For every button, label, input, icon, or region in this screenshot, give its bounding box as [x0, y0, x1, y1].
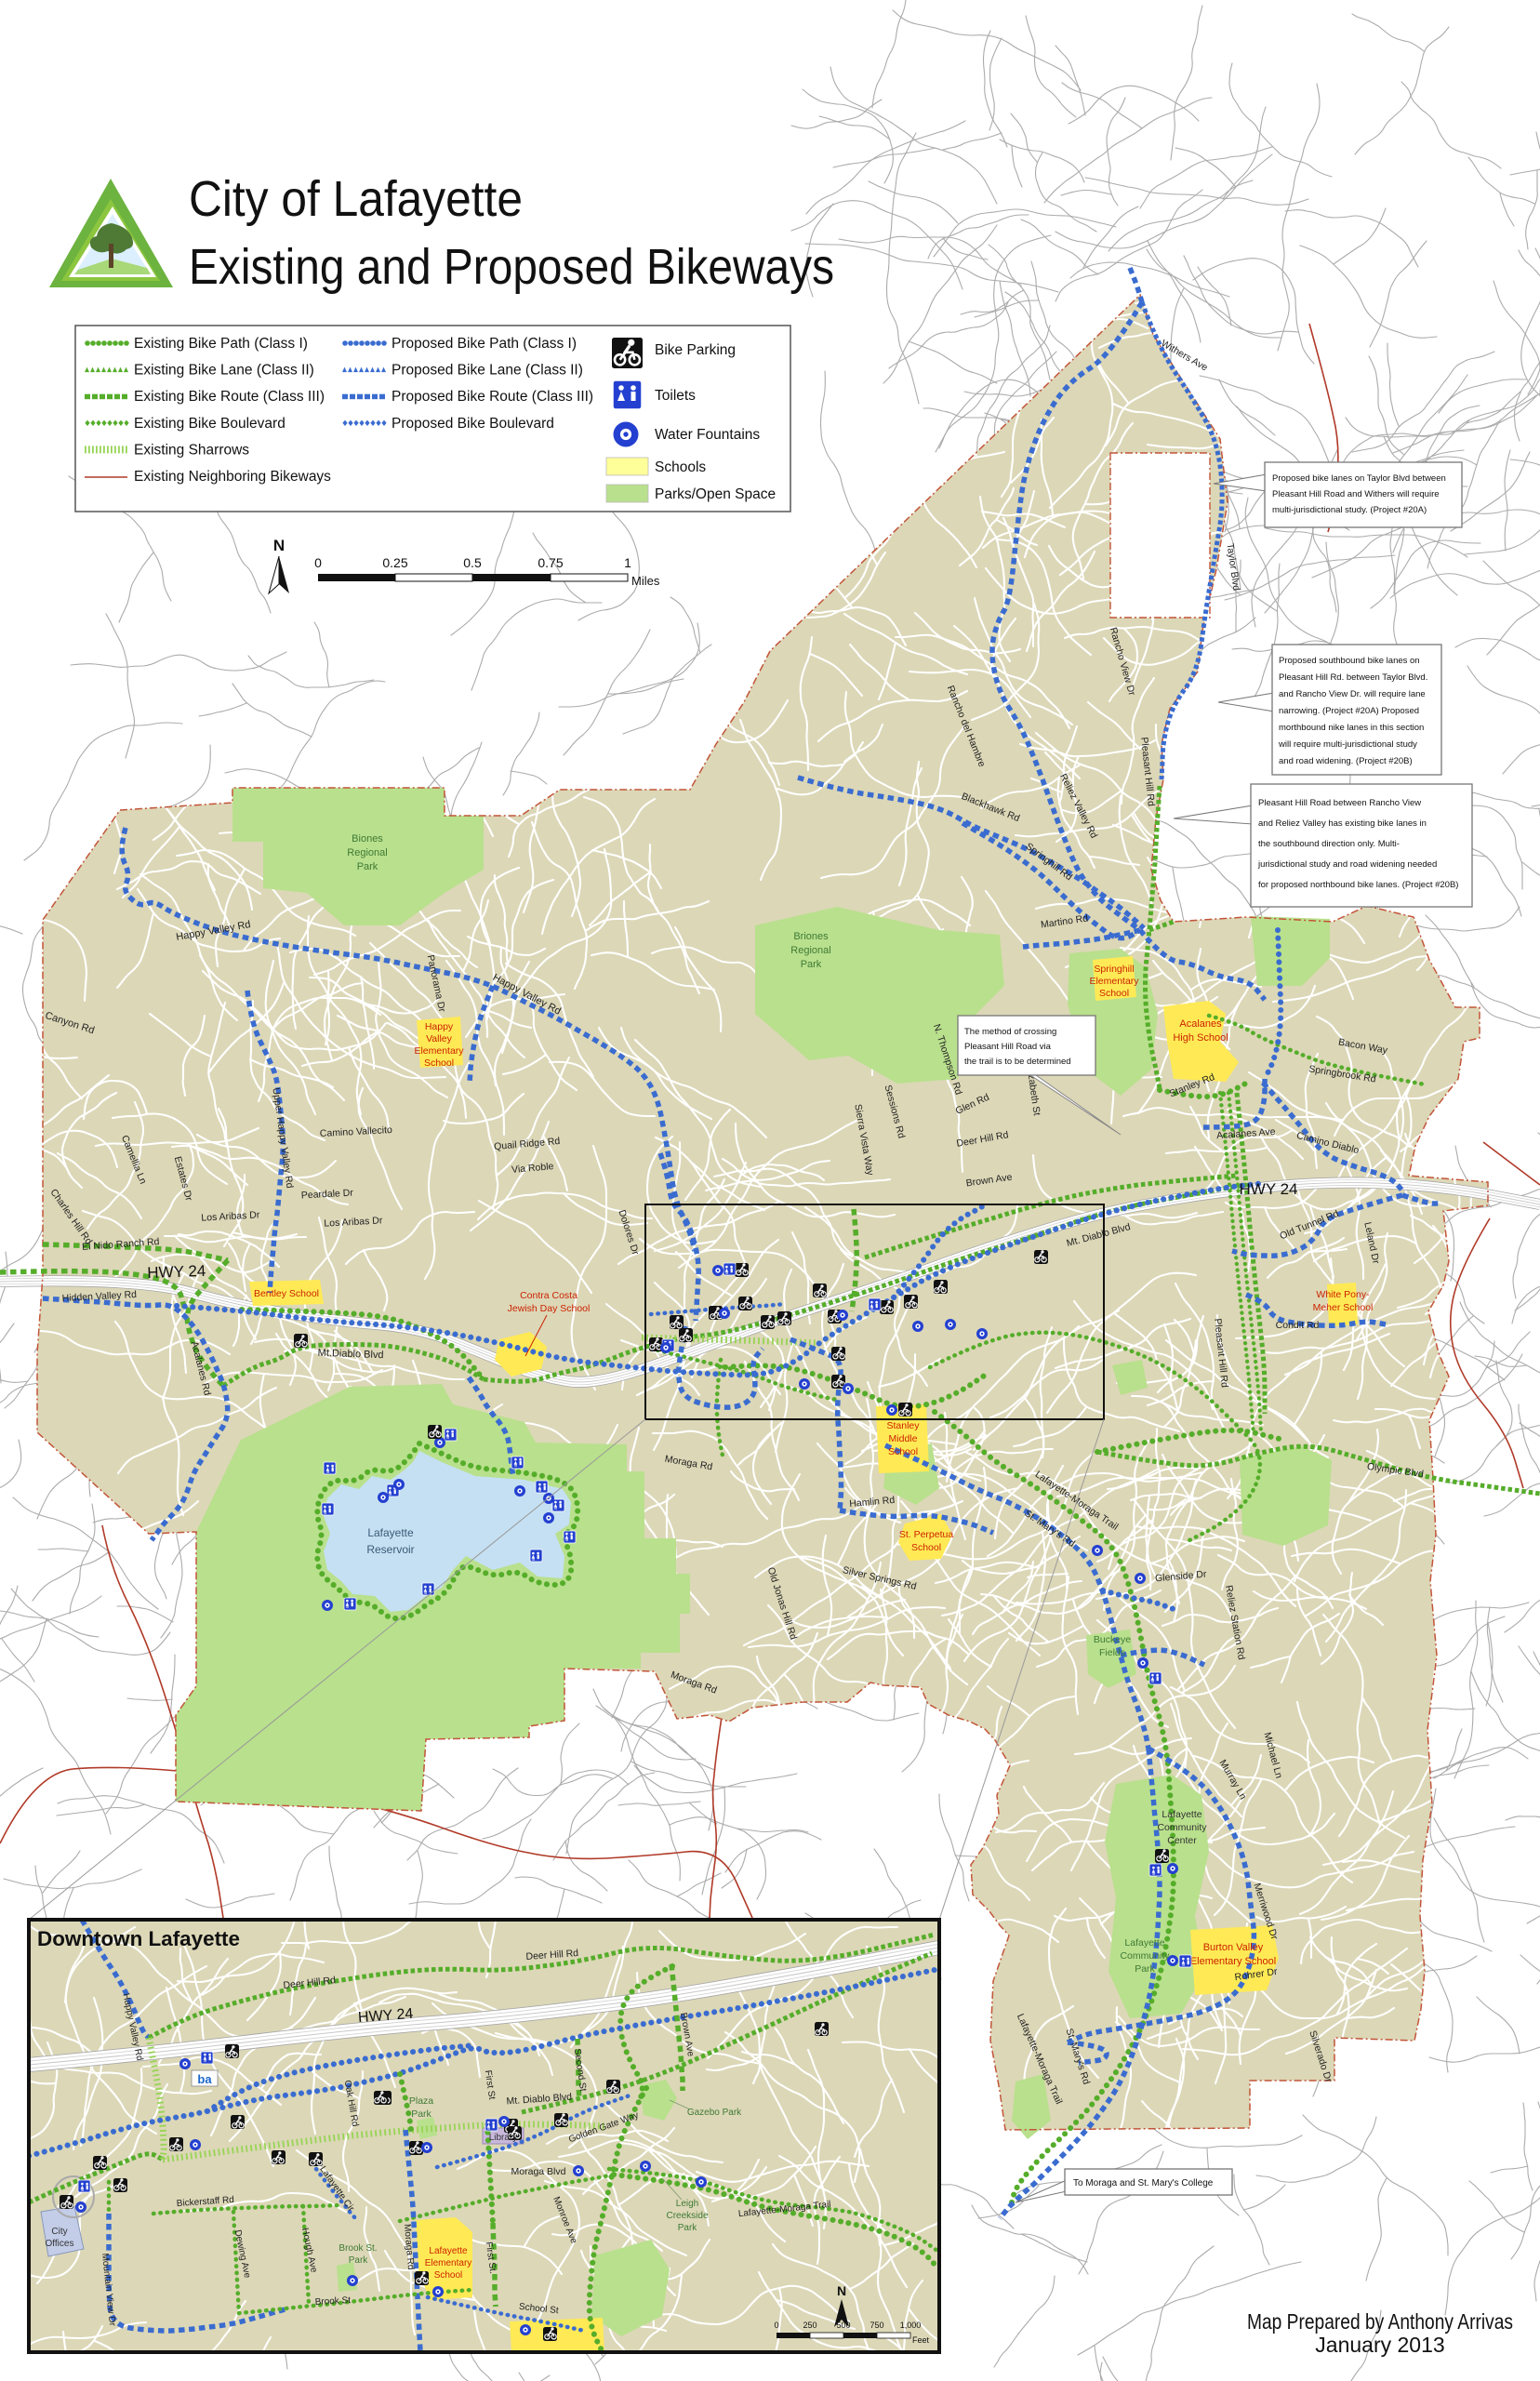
- svg-text:Happy: Happy: [425, 1021, 454, 1032]
- svg-text:Parks/Open Space: Parks/Open Space: [655, 486, 776, 502]
- svg-text:Center: Center: [1167, 1835, 1197, 1846]
- svg-text:School: School: [1099, 988, 1129, 999]
- svg-text:Park: Park: [1135, 1963, 1155, 1975]
- svg-text:Springhill: Springhill: [1094, 964, 1134, 975]
- svg-text:High School: High School: [1173, 1032, 1228, 1044]
- svg-text:and Rancho View Dr. will requi: and Rancho View Dr. will require lane: [1279, 689, 1426, 699]
- svg-text:0.25: 0.25: [382, 555, 407, 570]
- svg-text:Downtown Lafayette: Downtown Lafayette: [37, 1927, 240, 1950]
- svg-text:Offices: Offices: [46, 2239, 74, 2249]
- svg-text:Stanley: Stanley: [886, 1420, 920, 1431]
- svg-text:0.5: 0.5: [463, 555, 482, 570]
- svg-text:Elementary: Elementary: [1089, 976, 1139, 987]
- svg-text:Map Prepared by Anthony Arriva: Map Prepared by Anthony Arrivas: [1247, 2309, 1513, 2334]
- svg-text:will require multi-jurisdictio: will require multi-jurisdictional study: [1278, 739, 1417, 750]
- svg-text:Existing and Proposed Bikeways: Existing and Proposed Bikeways: [189, 239, 834, 295]
- svg-text:Park: Park: [357, 861, 378, 872]
- svg-text:Creekside: Creekside: [666, 2211, 708, 2221]
- svg-text:Leigh: Leigh: [676, 2199, 698, 2209]
- svg-text:Reservoir: Reservoir: [366, 1543, 414, 1556]
- svg-text:The method of crossing: The method of crossing: [964, 1027, 1056, 1037]
- svg-text:January 2013: January 2013: [1315, 2333, 1444, 2357]
- svg-text:Brook St.: Brook St.: [339, 2243, 377, 2254]
- svg-text:School: School: [888, 1446, 918, 1457]
- svg-text:Schools: Schools: [655, 459, 706, 475]
- svg-text:To Moraga and St. Mary's Colle: To Moraga and St. Mary's College: [1073, 2178, 1214, 2188]
- svg-text:Elementary: Elementary: [425, 2258, 472, 2268]
- svg-text:Contra Costa: Contra Costa: [520, 1290, 577, 1301]
- svg-text:School: School: [424, 1057, 454, 1069]
- svg-text:and road widening. (Project #2: and road widening. (Project #20B): [1279, 756, 1413, 766]
- svg-text:Moraga Blvd: Moraga Blvd: [511, 2166, 566, 2177]
- svg-text:Park: Park: [801, 959, 822, 970]
- svg-text:School: School: [911, 1542, 941, 1553]
- svg-text:Briones: Briones: [793, 931, 829, 942]
- svg-text:Elementary: Elementary: [414, 1045, 464, 1057]
- svg-text:Toilets: Toilets: [655, 388, 696, 404]
- svg-text:Pleasant Hill Road and Withers: Pleasant Hill Road and Withers will requ…: [1272, 489, 1440, 499]
- svg-text:Proposed Bike Path (Class I): Proposed Bike Path (Class I): [392, 336, 577, 352]
- svg-text:Water Fountains: Water Fountains: [655, 427, 760, 443]
- svg-text:Gazebo Park: Gazebo Park: [687, 2108, 742, 2118]
- svg-text:Mt.Diablo Blvd: Mt.Diablo Blvd: [317, 1348, 383, 1361]
- svg-text:the southbound direction only.: the southbound direction only. Multi-: [1258, 839, 1400, 849]
- svg-text:Condit Rd: Condit Rd: [1276, 1320, 1320, 1331]
- svg-text:1: 1: [624, 555, 631, 570]
- svg-text:ba: ba: [197, 2072, 212, 2086]
- svg-text:morthbound nike lanes in this: morthbound nike lanes in this section: [1279, 723, 1424, 733]
- svg-text:Park: Park: [411, 2108, 431, 2120]
- svg-text:Miles: Miles: [631, 574, 660, 588]
- svg-text:Lafayette: Lafayette: [367, 1526, 414, 1539]
- svg-text:jurisdictional study and road: jurisdictional study and road widening n…: [1257, 859, 1437, 870]
- svg-text:Proposed Bike Boulevard: Proposed Bike Boulevard: [392, 416, 554, 432]
- svg-text:the trail is to be determined: the trail is to be determined: [964, 1057, 1071, 1067]
- svg-text:Park: Park: [349, 2255, 369, 2266]
- svg-text:0.75: 0.75: [538, 555, 563, 570]
- svg-text:N: N: [837, 2283, 846, 2298]
- svg-text:Existing Bike Boulevard: Existing Bike Boulevard: [134, 416, 285, 432]
- svg-text:Existing Bike Path (Class I): Existing Bike Path (Class I): [134, 336, 308, 352]
- svg-text:0: 0: [314, 555, 322, 570]
- svg-text:Burton Valley: Burton Valley: [1203, 1942, 1264, 1953]
- svg-text:narrowing. (Project #20A) Pro: narrowing. (Project #20A) Proposed: [1279, 706, 1419, 716]
- svg-text:Proposed southbound bike lanes: Proposed southbound bike lanes on: [1279, 656, 1420, 666]
- svg-text:Fields: Fields: [1099, 1647, 1125, 1658]
- svg-text:Bentley School: Bentley School: [254, 1288, 319, 1299]
- svg-text:Brook St: Brook St: [314, 2295, 351, 2308]
- svg-text:School: School: [434, 2270, 463, 2281]
- svg-text:Existing Sharrows: Existing Sharrows: [134, 442, 249, 458]
- svg-text:0: 0: [774, 2321, 778, 2330]
- svg-text:Biones: Biones: [352, 833, 383, 845]
- svg-text:White Pony-: White Pony-: [1316, 1289, 1370, 1300]
- svg-text:500: 500: [836, 2321, 850, 2330]
- svg-text:Existing Neighboring Bikeways: Existing Neighboring Bikeways: [134, 469, 331, 485]
- svg-text:Lafayette: Lafayette: [429, 2246, 468, 2256]
- svg-text:HWY 24: HWY 24: [1240, 1180, 1298, 1198]
- svg-text:and Reliez Valley has existing: and Reliez Valley has existing bike lane…: [1258, 818, 1427, 829]
- svg-text:Lafayette: Lafayette: [1124, 1937, 1164, 1949]
- svg-text:Proposed bike lanes on Taylor: Proposed bike lanes on Taylor Blvd betwe…: [1272, 473, 1446, 484]
- svg-text:Meher School: Meher School: [1313, 1302, 1374, 1313]
- svg-text:750: 750: [870, 2321, 883, 2330]
- svg-text:Pleasant Hill Road between Ran: Pleasant Hill Road between Rancho View: [1258, 798, 1421, 808]
- svg-text:St. Perpetua: St. Perpetua: [899, 1529, 954, 1540]
- svg-text:Feet: Feet: [912, 2335, 930, 2345]
- svg-text:Community: Community: [1157, 1822, 1207, 1833]
- svg-text:City of Lafayette: City of Lafayette: [189, 171, 523, 227]
- svg-text:Acalanes: Acalanes: [1179, 1018, 1222, 1030]
- svg-text:HWY 24: HWY 24: [147, 1262, 206, 1282]
- svg-text:N: N: [273, 537, 285, 554]
- svg-text:Library: Library: [489, 2133, 518, 2143]
- svg-text:Plaza: Plaza: [409, 2095, 433, 2107]
- svg-text:Park: Park: [678, 2223, 698, 2233]
- svg-text:Valley: Valley: [426, 1033, 453, 1044]
- svg-text:Bike Parking: Bike Parking: [655, 342, 736, 358]
- svg-text:250: 250: [803, 2321, 816, 2330]
- svg-text:Existing Bike Route (Class III: Existing Bike Route (Class III): [134, 389, 325, 405]
- svg-text:Jewish Day School: Jewish Day School: [508, 1303, 591, 1314]
- svg-text:Elementary School: Elementary School: [1190, 1956, 1276, 1967]
- svg-text:Lafayette: Lafayette: [1162, 1809, 1201, 1820]
- svg-text:1,000: 1,000: [900, 2321, 922, 2330]
- svg-text:Proposed Bike Lane (Class II): Proposed Bike Lane (Class II): [392, 363, 583, 379]
- svg-text:Existing Bike Lane (Class II): Existing Bike Lane (Class II): [134, 363, 314, 379]
- svg-text:Middle: Middle: [889, 1433, 918, 1444]
- svg-text:Pleasant Hill Road via: Pleasant Hill Road via: [964, 1042, 1052, 1052]
- svg-text:Community: Community: [1120, 1950, 1170, 1962]
- svg-text:for proposed northbound bike l: for proposed northbound bike lanes. (Pro…: [1258, 880, 1458, 890]
- svg-text:multi-jurisdictional study. (P: multi-jurisdictional study. (Project #20…: [1272, 505, 1427, 515]
- svg-text:Regional: Regional: [347, 847, 387, 858]
- svg-text:Proposed Bike Route (Class III: Proposed Bike Route (Class III): [392, 389, 593, 405]
- svg-text:Buckeye: Buckeye: [1094, 1634, 1131, 1645]
- svg-text:City: City: [51, 2227, 67, 2237]
- svg-text:Pleasant Hill Rd. between Tayl: Pleasant Hill Rd. between Taylor Blvd.: [1279, 672, 1427, 683]
- svg-text:Regional: Regional: [790, 945, 830, 956]
